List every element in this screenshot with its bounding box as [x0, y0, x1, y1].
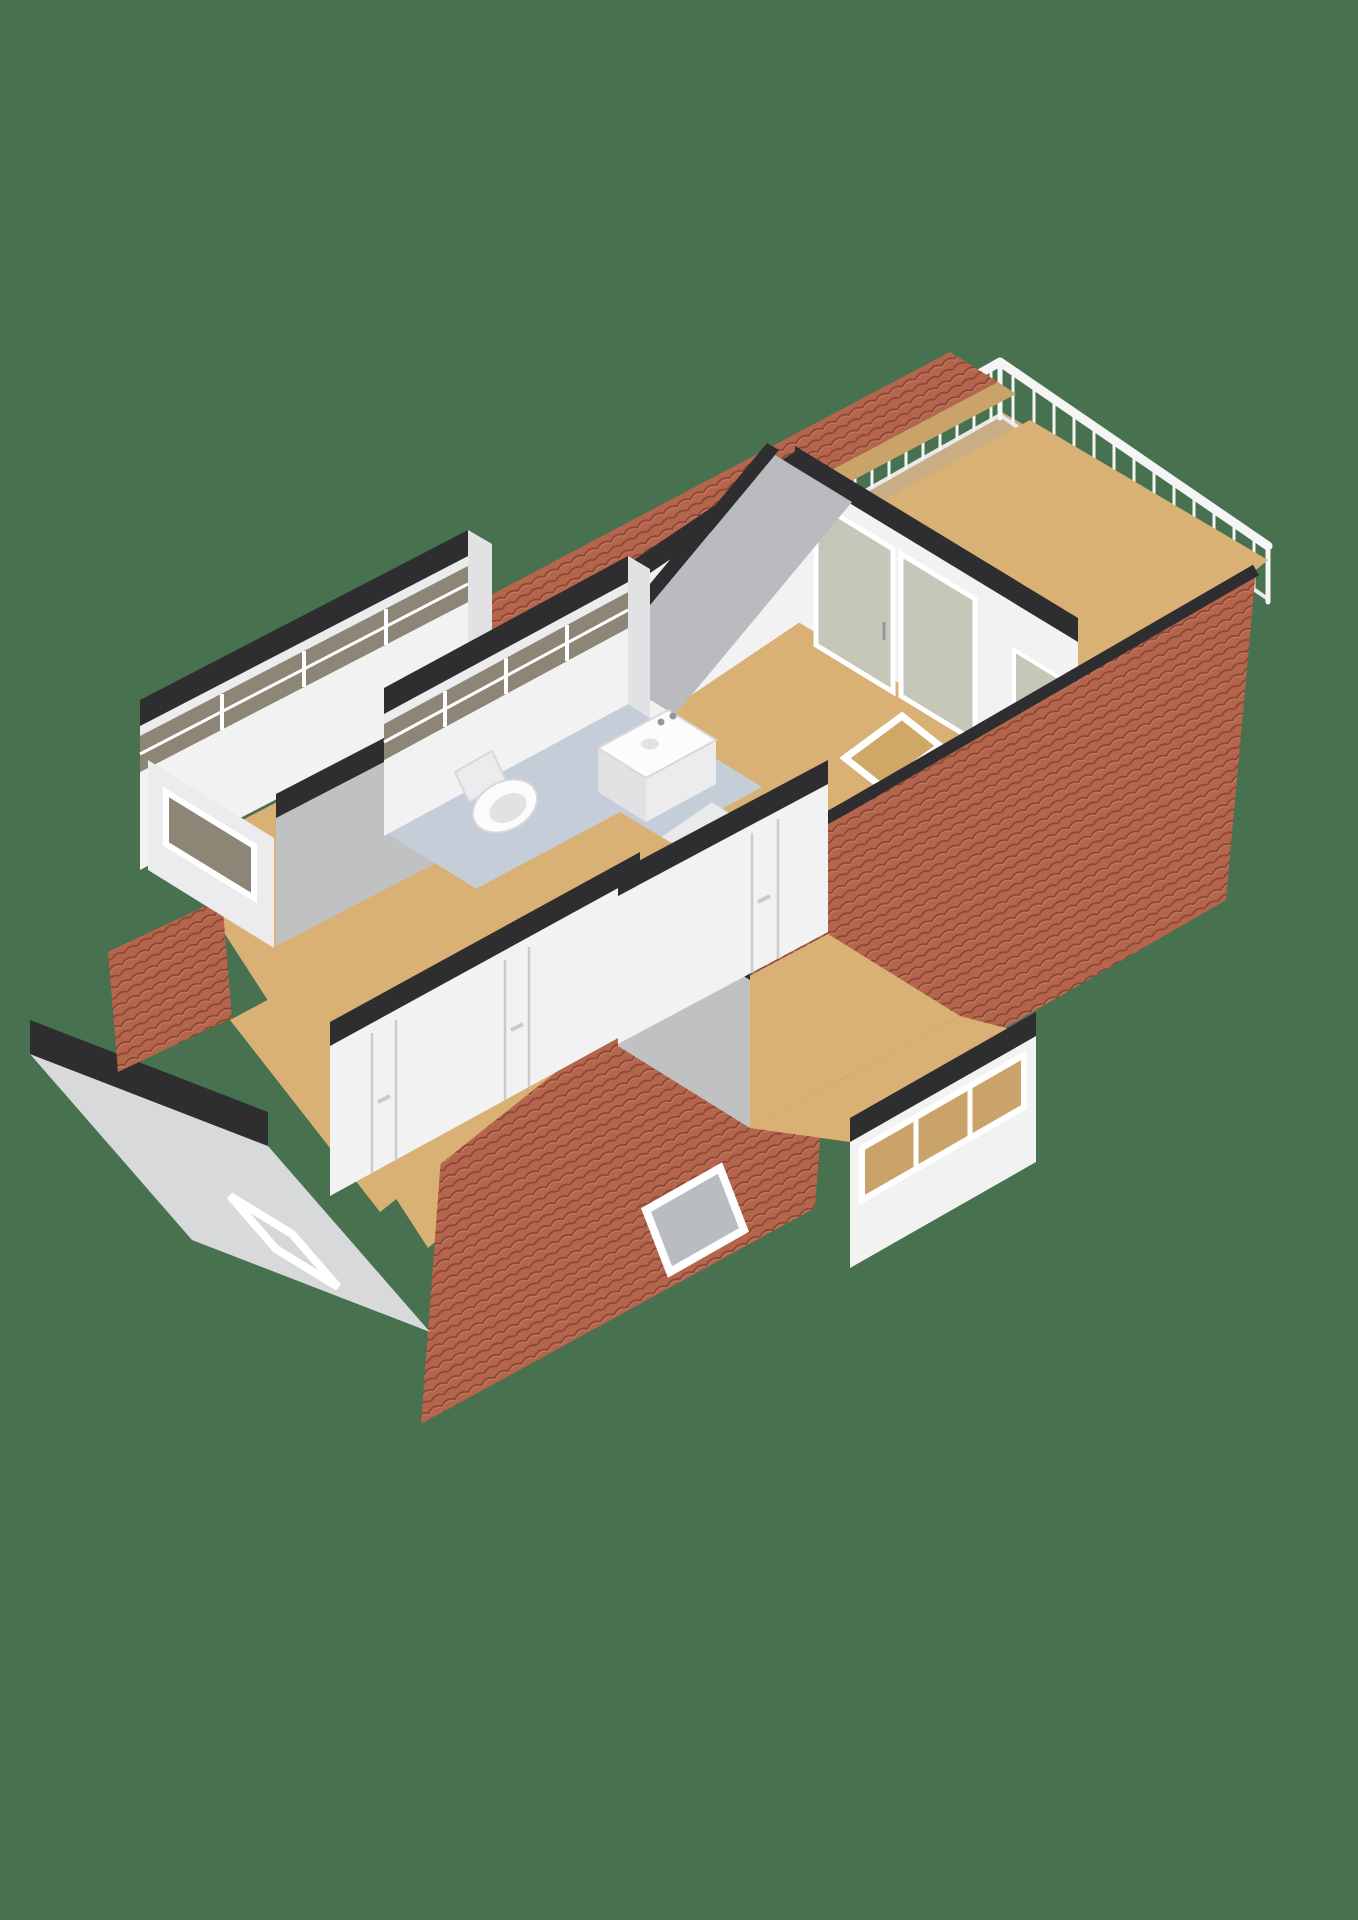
floorplan-3d-canvas: [0, 0, 1358, 1920]
floorplan-3d-svg: [0, 0, 1358, 1920]
faucet: [658, 719, 665, 726]
basin: [641, 739, 659, 750]
faucet: [670, 713, 677, 720]
dormer-side-face: [628, 556, 650, 717]
